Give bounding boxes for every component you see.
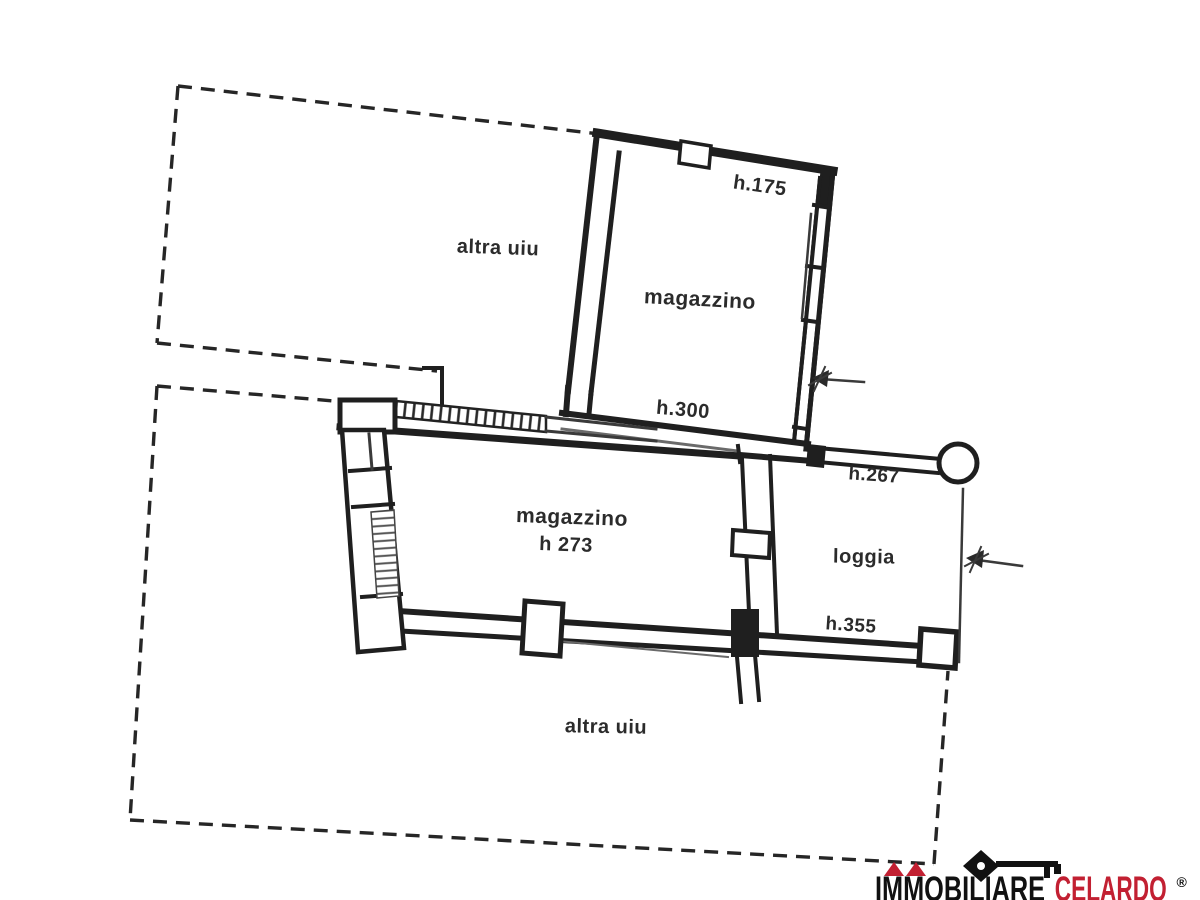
- wall-pillar-bottom: [522, 601, 563, 656]
- label-upper-area: altra uiu: [456, 236, 539, 261]
- window-upper-right: [794, 171, 833, 449]
- label-height-355: h.355: [825, 613, 877, 638]
- corner-pillar: [919, 629, 957, 668]
- entry-arrow-icon-loggia: [965, 547, 1022, 572]
- wall-niche: [679, 141, 711, 168]
- brand-logo: IMMOBILIARE CELARDO ®: [875, 850, 1187, 900]
- label-upper-magazzino: magazzino: [644, 285, 757, 314]
- label-central-magazzino: magazzino: [516, 504, 629, 531]
- label-height-267: h.267: [848, 463, 900, 488]
- floor-plan-drawing: altra uiu magazzino h.175 h.300 magazzin…: [0, 0, 1200, 900]
- label-height-273: h 273: [539, 533, 593, 557]
- floor-plan-page: altra uiu magazzino h.175 h.300 magazzin…: [0, 0, 1200, 900]
- wall-pillar-top-left: [340, 400, 395, 432]
- label-height-175: h.175: [732, 171, 788, 200]
- wall-stub-down: [731, 609, 759, 702]
- left-wall-window: [342, 430, 404, 652]
- wall-notch: [732, 530, 770, 558]
- brand-text-black: IMMOBILIARE: [875, 870, 1045, 900]
- registered-mark: ®: [1176, 874, 1187, 890]
- brand-text-red: CELARDO: [1055, 870, 1167, 900]
- label-lower-area: altra uiu: [565, 715, 648, 738]
- brand-text: IMMOBILIARE CELARDO ®: [875, 870, 1187, 900]
- label-height-300: h.300: [655, 397, 710, 424]
- entry-arrow-icon: [809, 367, 864, 391]
- round-column: [939, 444, 977, 482]
- label-loggia: loggia: [833, 545, 896, 568]
